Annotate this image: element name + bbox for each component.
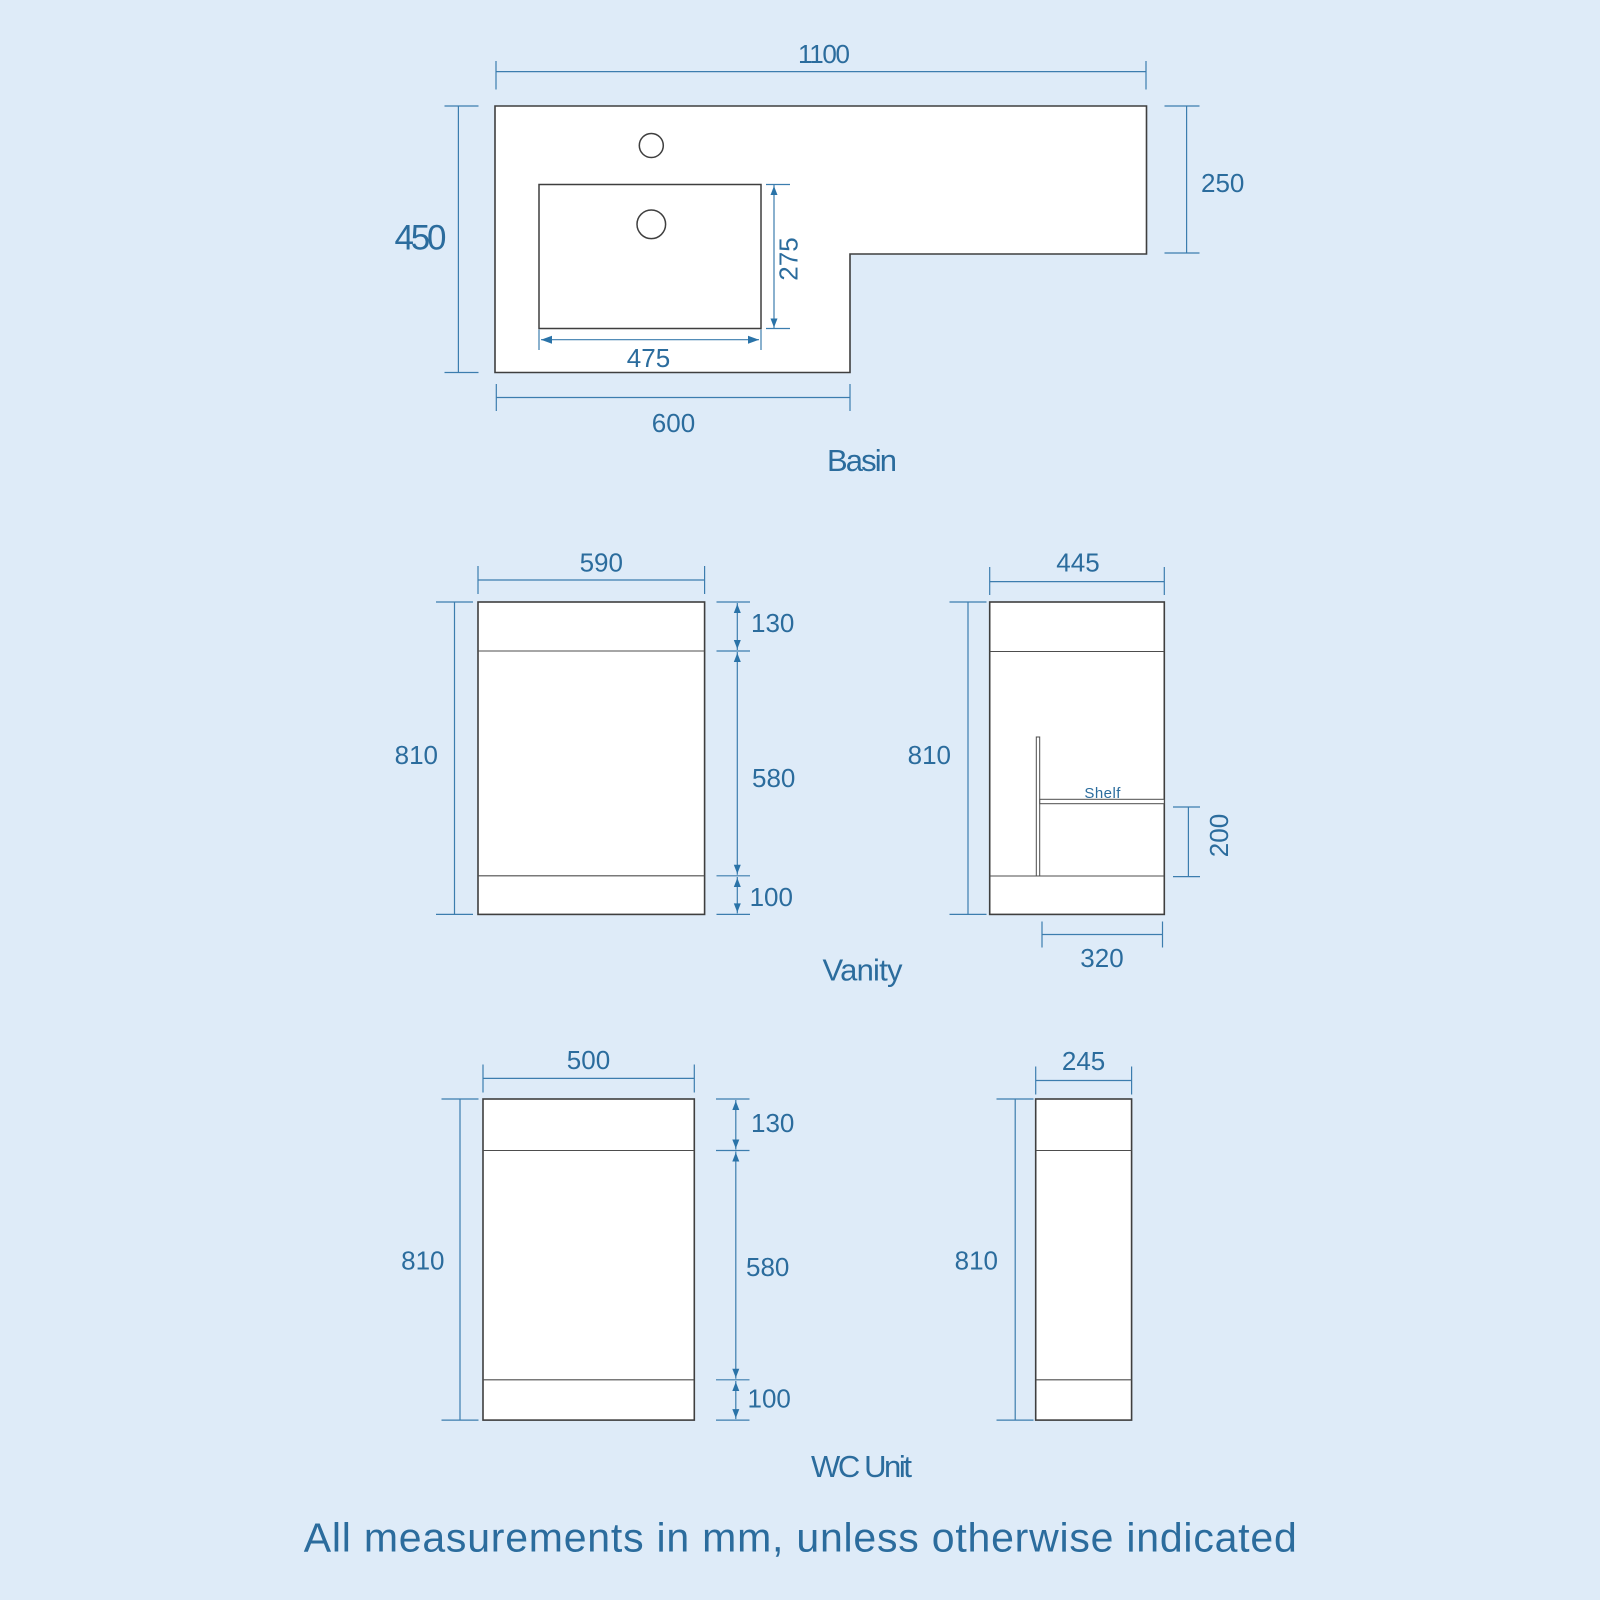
svg-text:All measurements in mm, unless: All measurements in mm, unless otherwise…	[304, 1514, 1297, 1560]
svg-text:250: 250	[1201, 168, 1244, 198]
svg-text:320: 320	[1080, 943, 1123, 973]
svg-text:130: 130	[751, 1108, 794, 1138]
svg-text:450: 450	[395, 218, 447, 257]
svg-text:600: 600	[652, 408, 695, 438]
svg-text:245: 245	[1062, 1046, 1105, 1076]
svg-text:590: 590	[580, 548, 623, 578]
svg-text:580: 580	[752, 763, 795, 793]
svg-text:500: 500	[567, 1045, 610, 1075]
svg-text:130: 130	[751, 608, 794, 638]
svg-text:475: 475	[627, 343, 670, 373]
svg-text:Vanity: Vanity	[823, 953, 904, 988]
svg-text:Shelf: Shelf	[1084, 785, 1121, 802]
svg-text:200: 200	[1204, 814, 1234, 857]
svg-text:Basin: Basin	[827, 443, 897, 478]
svg-text:810: 810	[401, 1245, 444, 1275]
svg-text:810: 810	[395, 740, 438, 770]
svg-text:275: 275	[774, 237, 804, 280]
svg-text:810: 810	[955, 1245, 998, 1275]
svg-text:100: 100	[750, 882, 793, 912]
svg-text:WC Unit: WC Unit	[811, 1449, 912, 1484]
svg-text:1100: 1100	[798, 39, 850, 69]
svg-text:810: 810	[908, 740, 951, 770]
svg-text:100: 100	[748, 1384, 791, 1414]
svg-text:445: 445	[1056, 548, 1099, 578]
svg-text:580: 580	[746, 1252, 789, 1282]
